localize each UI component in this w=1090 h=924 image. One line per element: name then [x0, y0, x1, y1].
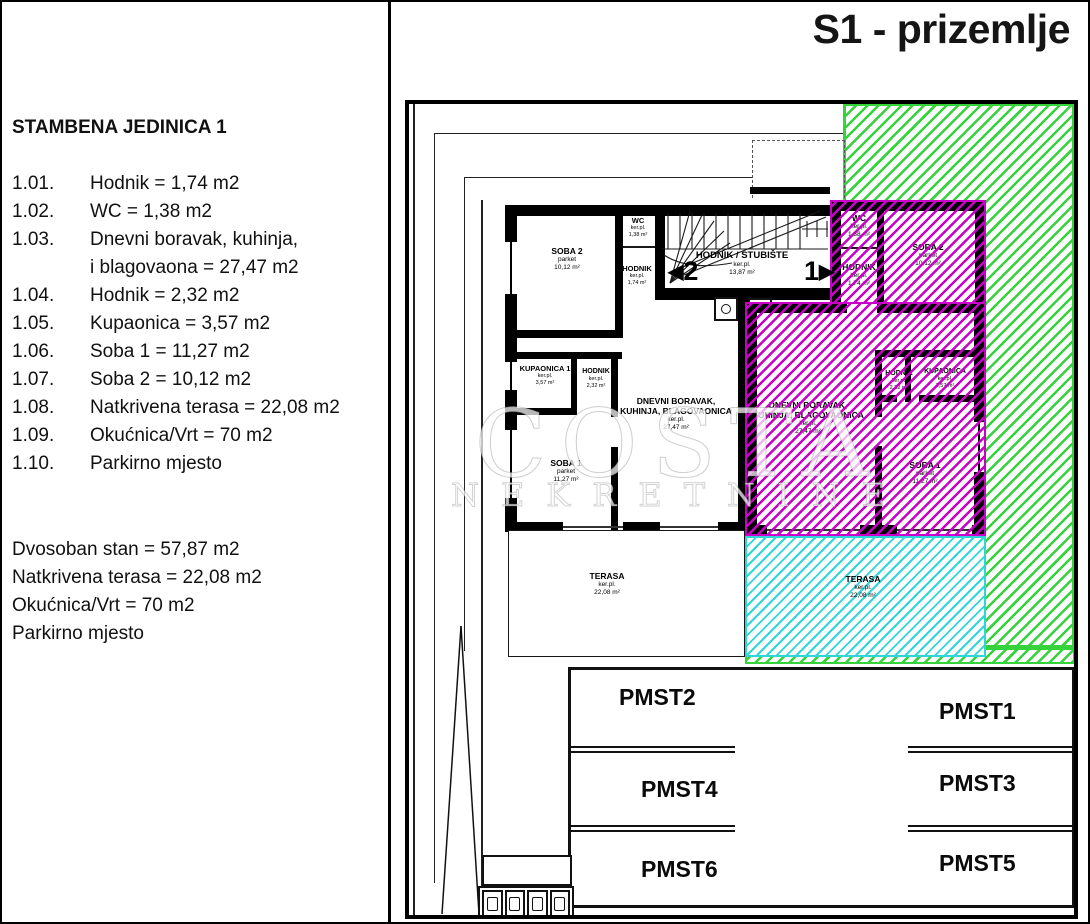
item-text: WC = 1,38 m2 — [90, 198, 212, 226]
list-item: 1.03.Dnevni boravak, kuhinja, — [12, 226, 386, 254]
page-title: S1 - prizemlje — [690, 6, 1070, 53]
list-item: 1.05.Kupaonica = 3,57 m2 — [12, 310, 386, 338]
sidebar-divider — [388, 0, 391, 924]
item-number: 1.01. — [12, 170, 90, 198]
plot-boundary — [405, 100, 1078, 919]
item-number: 1.04. — [12, 282, 90, 310]
summary-line: Parkirno mjesto — [12, 620, 386, 648]
list-item: 1.06.Soba 1 = 11,27 m2 — [12, 338, 386, 366]
summary-line: Natkrivena terasa = 22,08 m2 — [12, 564, 386, 592]
summary-block: Dvosoban stan = 57,87 m2 Natkrivena tera… — [12, 536, 386, 648]
floor-plan-page: { "title": "S1 - prizemlje", "sidebar": … — [0, 0, 1090, 924]
list-item: i blagovaona = 27,47 m2 — [12, 254, 386, 282]
summary-line: Dvosoban stan = 57,87 m2 — [12, 536, 386, 564]
item-number: 1.06. — [12, 338, 90, 366]
summary-line: Okućnica/Vrt = 70 m2 — [12, 592, 386, 620]
sidebar: STAMBENA JEDINICA 1 1.01.Hodnik = 1,74 m… — [0, 0, 390, 924]
item-number: 1.07. — [12, 366, 90, 394]
item-text: Hodnik = 2,32 m2 — [90, 282, 239, 310]
list-item: 1.10.Parkirno mjesto — [12, 450, 386, 478]
list-item: 1.04.Hodnik = 2,32 m2 — [12, 282, 386, 310]
item-text: Soba 1 = 11,27 m2 — [90, 338, 250, 366]
list-item: 1.07.Soba 2 = 10,12 m2 — [12, 366, 386, 394]
item-text: Hodnik = 1,74 m2 — [90, 170, 239, 198]
item-text: Soba 2 = 10,12 m2 — [90, 366, 251, 394]
list-item: 1.01.Hodnik = 1,74 m2 — [12, 170, 386, 198]
room-list: 1.01.Hodnik = 1,74 m2 1.02.WC = 1,38 m2 … — [12, 170, 386, 478]
item-text: Okućnica/Vrt = 70 m2 — [90, 422, 273, 450]
list-item: 1.08.Natkrivena terasa = 22,08 m2 — [12, 394, 386, 422]
list-item: 1.02.WC = 1,38 m2 — [12, 198, 386, 226]
item-text: Dnevni boravak, kuhinja, — [90, 226, 298, 254]
item-text: Natkrivena terasa = 22,08 m2 — [90, 394, 340, 422]
item-number: 1.03. — [12, 226, 90, 254]
item-text: Kupaonica = 3,57 m2 — [90, 310, 270, 338]
list-item: 1.09.Okućnica/Vrt = 70 m2 — [12, 422, 386, 450]
item-text: i blagovaona = 27,47 m2 — [90, 254, 299, 282]
unit-heading: STAMBENA JEDINICA 1 — [12, 117, 227, 139]
item-number: 1.05. — [12, 310, 90, 338]
item-number — [12, 254, 90, 282]
item-text: Parkirno mjesto — [90, 450, 222, 478]
item-number: 1.02. — [12, 198, 90, 226]
item-number: 1.09. — [12, 422, 90, 450]
item-number: 1.08. — [12, 394, 90, 422]
item-number: 1.10. — [12, 450, 90, 478]
